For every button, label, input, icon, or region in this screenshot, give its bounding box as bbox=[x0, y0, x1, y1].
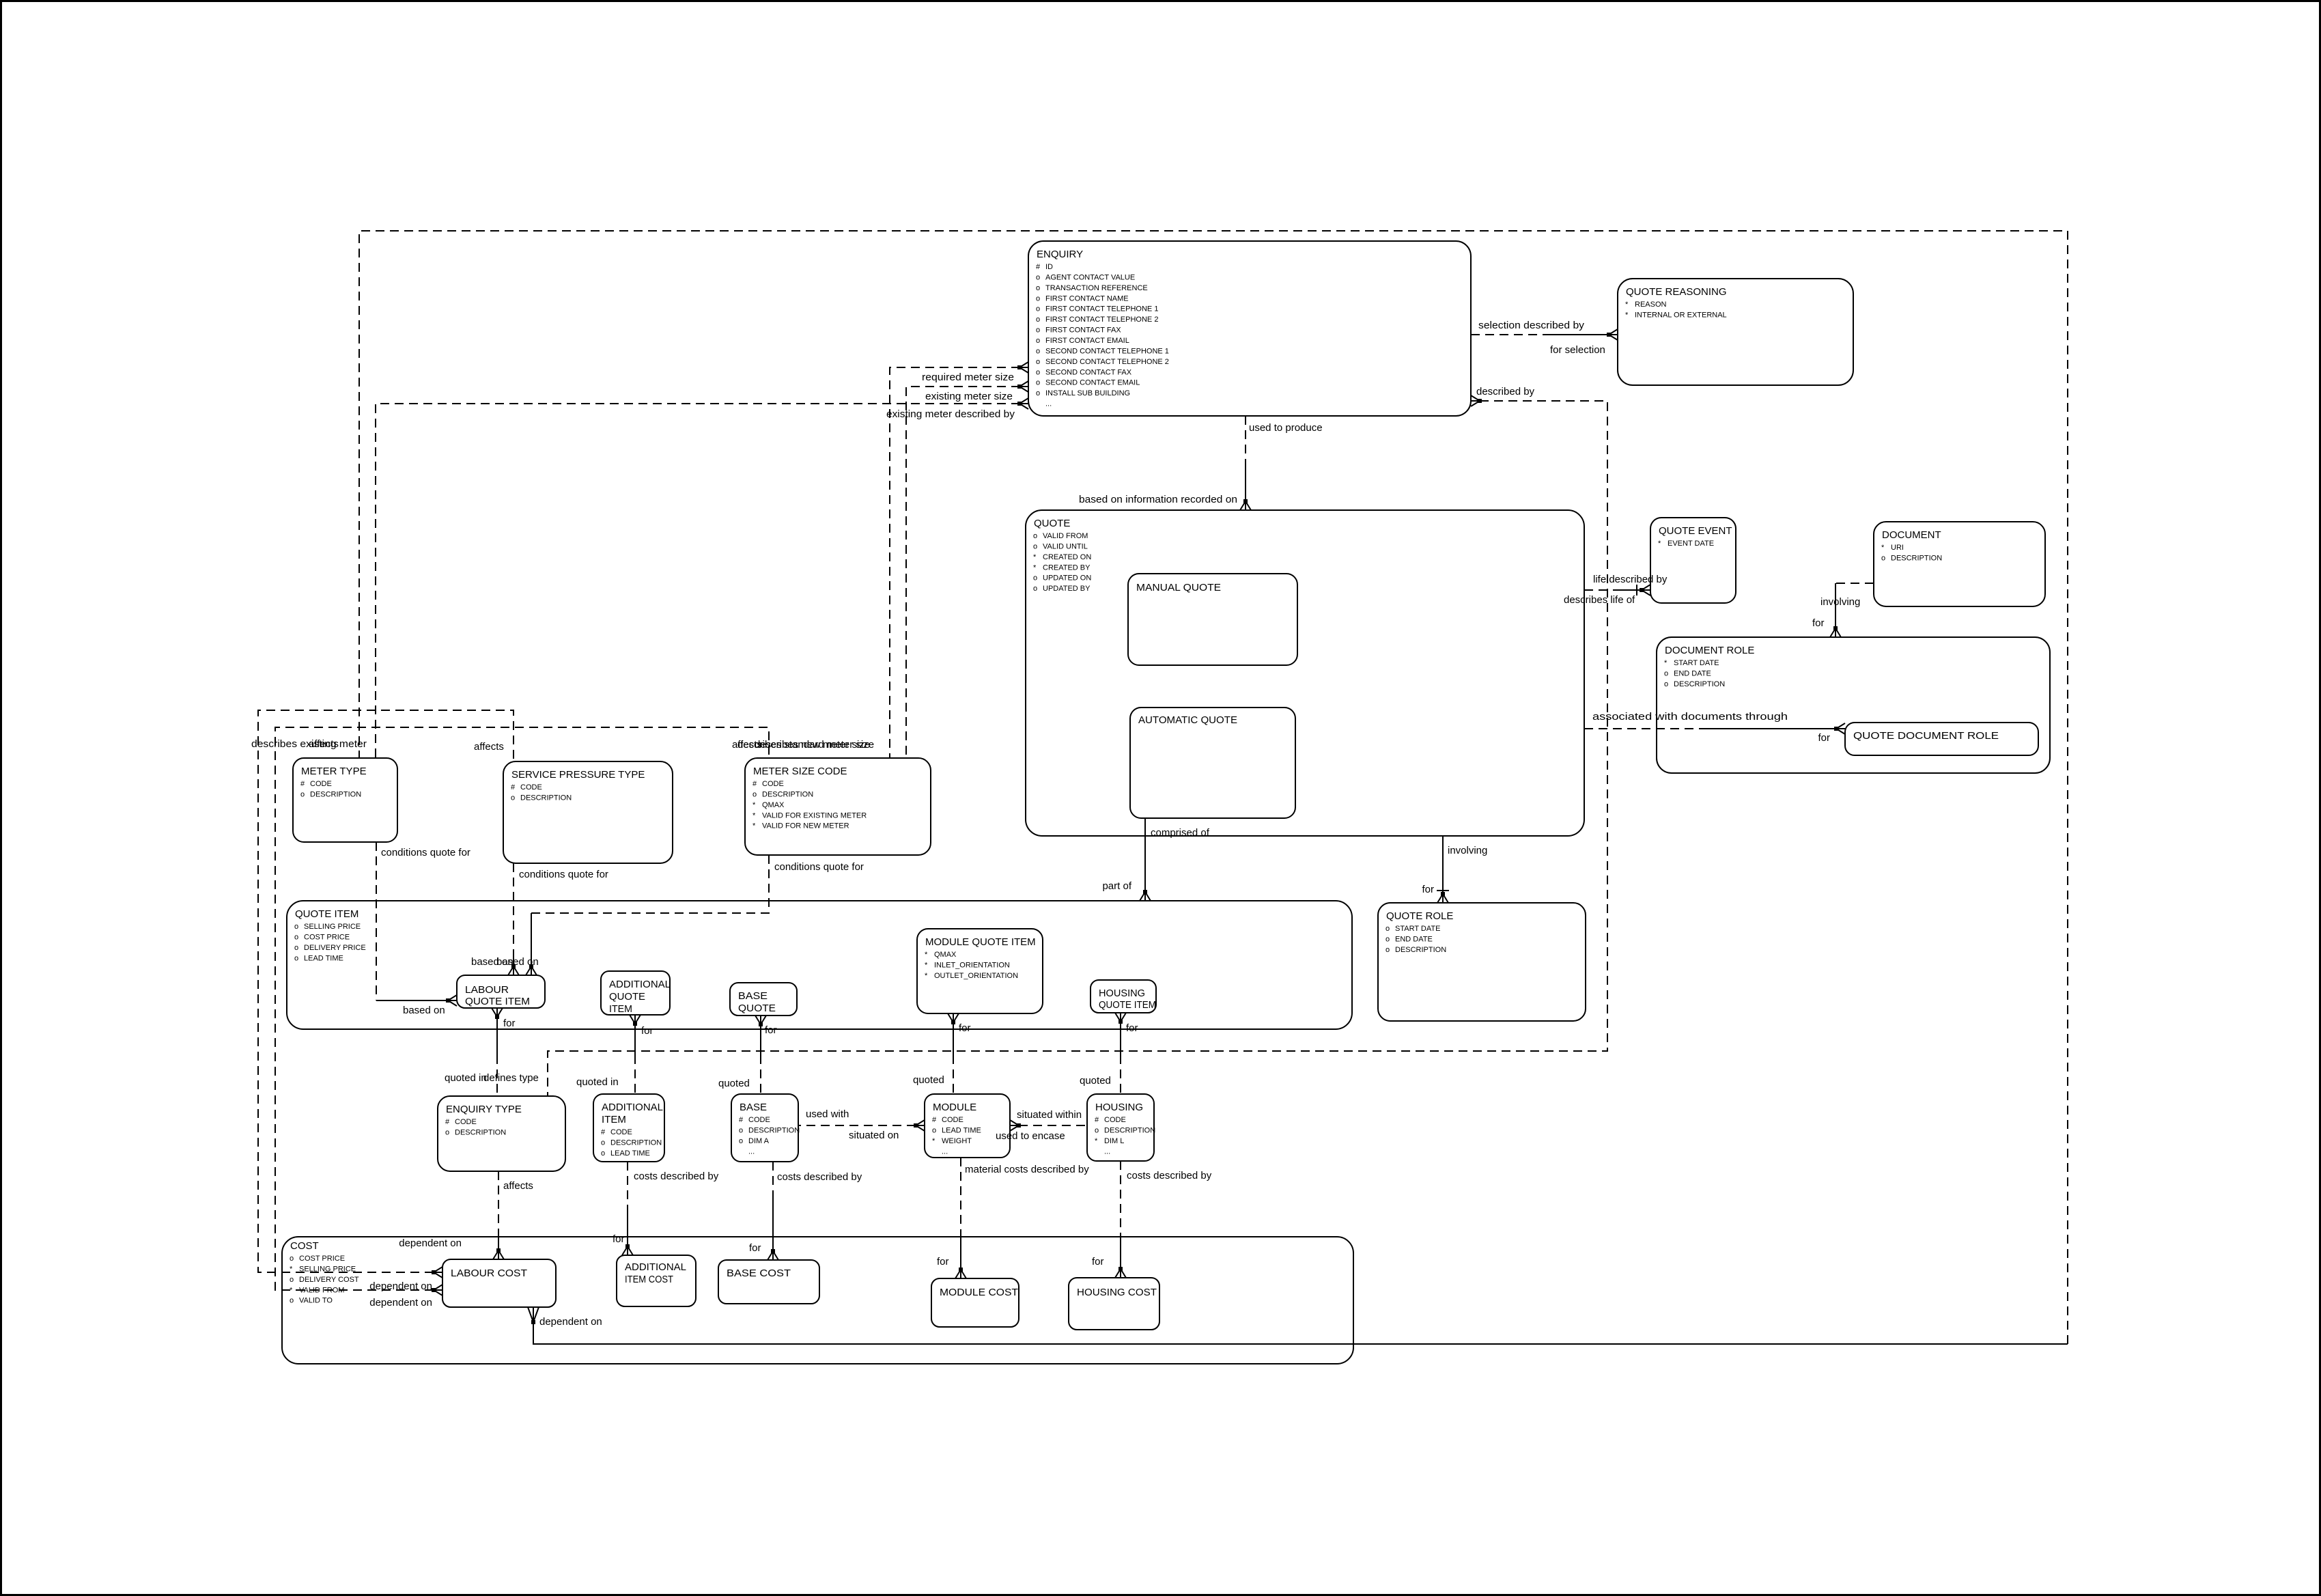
svg-text:AGENT CONTACT VALUE: AGENT CONTACT VALUE bbox=[1045, 273, 1135, 281]
svg-text:o: o bbox=[294, 923, 298, 931]
svg-text:QUOTE ITEM: QUOTE ITEM bbox=[1099, 999, 1156, 1011]
svg-text:o: o bbox=[294, 944, 298, 952]
svg-text:costs described by: costs described by bbox=[634, 1171, 719, 1182]
svg-text:VALID FROM: VALID FROM bbox=[1043, 532, 1088, 540]
svg-text:o: o bbox=[445, 1128, 449, 1136]
svg-text:SERVICE PRESSURE TYPE: SERVICE PRESSURE TYPE bbox=[511, 769, 645, 781]
svg-text:QUOTE: QUOTE bbox=[609, 991, 645, 1003]
svg-text:for: for bbox=[1422, 884, 1434, 895]
svg-text:defines type: defines type bbox=[483, 1072, 539, 1084]
svg-text:SECOND CONTACT TELEPHONE 2: SECOND CONTACT TELEPHONE 2 bbox=[1045, 358, 1169, 366]
svg-text:costs described by: costs described by bbox=[777, 1171, 862, 1183]
svg-text:DESCRIPTION: DESCRIPTION bbox=[748, 1126, 800, 1134]
svg-text:o: o bbox=[1036, 305, 1040, 313]
svg-text:situated on: situated on bbox=[849, 1130, 899, 1141]
svg-text:DOCUMENT ROLE: DOCUMENT ROLE bbox=[1665, 645, 1754, 656]
svg-text:#: # bbox=[1095, 1116, 1099, 1124]
svg-text:SECOND CONTACT EMAIL: SECOND CONTACT EMAIL bbox=[1045, 379, 1140, 387]
svg-text:based on information recorded: based on information recorded on bbox=[1079, 494, 1237, 505]
svg-text:TRANSACTION REFERENCE: TRANSACTION REFERENCE bbox=[1045, 284, 1148, 292]
svg-text:...: ... bbox=[748, 1147, 755, 1156]
svg-text:MODULE QUOTE ITEM: MODULE QUOTE ITEM bbox=[925, 936, 1036, 948]
svg-text:FIRST CONTACT TELEPHONE 1: FIRST CONTACT TELEPHONE 1 bbox=[1045, 305, 1158, 313]
svg-text:LEAD TIME: LEAD TIME bbox=[610, 1149, 650, 1158]
svg-text:o: o bbox=[739, 1137, 743, 1145]
svg-text:#: # bbox=[601, 1128, 606, 1136]
svg-text:quoted: quoted bbox=[718, 1078, 750, 1089]
svg-text:affects: affects bbox=[309, 738, 339, 750]
svg-text:o: o bbox=[752, 790, 757, 798]
svg-text:#: # bbox=[511, 783, 516, 792]
svg-text:dependent on: dependent on bbox=[369, 1297, 432, 1308]
svg-text:COST PRICE: COST PRICE bbox=[299, 1255, 345, 1263]
svg-text:describes new meter size: describes new meter size bbox=[755, 739, 870, 751]
svg-text:o: o bbox=[290, 1297, 294, 1305]
svg-text:o: o bbox=[511, 794, 515, 802]
svg-text:*: * bbox=[1625, 311, 1629, 319]
svg-text:VALID TO: VALID TO bbox=[299, 1297, 333, 1305]
svg-text:o: o bbox=[1036, 389, 1040, 397]
svg-text:FIRST CONTACT TELEPHONE 2: FIRST CONTACT TELEPHONE 2 bbox=[1045, 316, 1158, 324]
svg-text:ITEM: ITEM bbox=[602, 1114, 626, 1125]
svg-text:HOUSING: HOUSING bbox=[1095, 1102, 1143, 1113]
svg-text:BASE: BASE bbox=[738, 990, 768, 1002]
svg-text:DESCRIPTION: DESCRIPTION bbox=[1674, 680, 1725, 688]
svg-text:o: o bbox=[300, 790, 305, 798]
svg-text:*: * bbox=[932, 1137, 936, 1145]
svg-text:*: * bbox=[1664, 659, 1668, 667]
svg-text:LABOUR: LABOUR bbox=[465, 984, 509, 996]
svg-text:o: o bbox=[294, 954, 298, 962]
svg-text:INLET_ORIENTATION: INLET_ORIENTATION bbox=[934, 961, 1010, 969]
svg-text:part of: part of bbox=[1102, 880, 1131, 892]
svg-text:#: # bbox=[752, 780, 757, 788]
svg-text:REASON: REASON bbox=[1635, 300, 1667, 309]
svg-text:QUOTE DOCUMENT ROLE: QUOTE DOCUMENT ROLE bbox=[1853, 730, 1999, 742]
svg-text:o: o bbox=[1033, 574, 1037, 583]
svg-text:ADDITIONAL: ADDITIONAL bbox=[602, 1102, 663, 1113]
svg-text:DELIVERY PRICE: DELIVERY PRICE bbox=[304, 944, 366, 952]
svg-text:associated with documents thro: associated with documents through bbox=[1592, 711, 1788, 723]
svg-text:o: o bbox=[1036, 273, 1040, 281]
svg-text:o: o bbox=[1036, 326, 1040, 335]
svg-text:o: o bbox=[1385, 946, 1390, 954]
svg-text:CODE: CODE bbox=[1104, 1116, 1126, 1124]
svg-text:for: for bbox=[503, 1018, 516, 1029]
svg-text:o: o bbox=[1036, 368, 1040, 376]
svg-text:used to produce: used to produce bbox=[1249, 422, 1323, 434]
svg-text:conditions quote for: conditions quote for bbox=[774, 861, 864, 873]
svg-text:CODE: CODE bbox=[942, 1116, 963, 1124]
svg-text:CODE: CODE bbox=[455, 1118, 477, 1126]
svg-text:DESCRIPTION: DESCRIPTION bbox=[310, 790, 361, 798]
svg-text:involving: involving bbox=[1820, 596, 1860, 608]
svg-text:quoted in: quoted in bbox=[445, 1072, 487, 1084]
svg-text:FIRST CONTACT NAME: FIRST CONTACT NAME bbox=[1045, 294, 1129, 303]
svg-text:LEAD TIME: LEAD TIME bbox=[304, 954, 343, 962]
svg-text:o: o bbox=[1664, 680, 1668, 688]
svg-text:QUOTE EVENT: QUOTE EVENT bbox=[1659, 525, 1732, 537]
svg-text:for: for bbox=[613, 1233, 625, 1245]
svg-text:FIRST CONTACT FAX: FIRST CONTACT FAX bbox=[1045, 326, 1121, 335]
svg-text:COST PRICE: COST PRICE bbox=[304, 933, 350, 941]
svg-text:o: o bbox=[1385, 935, 1390, 943]
svg-text:o: o bbox=[1033, 542, 1037, 550]
svg-text:existing meter size: existing meter size bbox=[925, 391, 1013, 402]
svg-text:METER SIZE CODE: METER SIZE CODE bbox=[753, 766, 847, 777]
svg-text:LEAD TIME: LEAD TIME bbox=[942, 1126, 981, 1134]
svg-text:o: o bbox=[290, 1255, 294, 1263]
svg-text:*: * bbox=[1881, 544, 1885, 552]
svg-text:for: for bbox=[1818, 732, 1830, 744]
svg-text:#: # bbox=[1036, 263, 1041, 271]
svg-text:FIRST CONTACT EMAIL: FIRST CONTACT EMAIL bbox=[1045, 337, 1129, 345]
svg-text:SECOND CONTACT TELEPHONE 1: SECOND CONTACT TELEPHONE 1 bbox=[1045, 347, 1169, 355]
svg-text:o: o bbox=[1033, 532, 1037, 540]
svg-text:for: for bbox=[641, 1025, 653, 1037]
svg-text:required meter size: required meter size bbox=[922, 372, 1014, 383]
svg-text:existing meter described by: existing meter described by bbox=[886, 408, 1015, 420]
svg-text:INTERNAL OR EXTERNAL: INTERNAL OR EXTERNAL bbox=[1635, 311, 1727, 319]
svg-text:*: * bbox=[1625, 300, 1629, 309]
svg-text:describes life of: describes life of bbox=[1564, 594, 1635, 606]
svg-text:*: * bbox=[925, 961, 928, 969]
svg-text:o: o bbox=[739, 1126, 743, 1134]
svg-text:ITEM COST: ITEM COST bbox=[625, 1274, 673, 1285]
svg-text:o: o bbox=[1881, 554, 1885, 562]
svg-text:DESCRIPTION: DESCRIPTION bbox=[455, 1128, 506, 1136]
svg-text:o: o bbox=[1385, 925, 1390, 933]
svg-text:MODULE COST: MODULE COST bbox=[940, 1287, 1018, 1298]
svg-text:ADDITIONAL: ADDITIONAL bbox=[609, 979, 671, 990]
svg-text:END DATE: END DATE bbox=[1395, 935, 1433, 943]
svg-text:BASE COST: BASE COST bbox=[727, 1268, 791, 1279]
svg-text:for selection: for selection bbox=[1550, 344, 1605, 356]
svg-text:DELIVERY COST: DELIVERY COST bbox=[299, 1276, 359, 1284]
svg-text:costs described by: costs described by bbox=[1127, 1170, 1212, 1181]
svg-text:conditions quote for: conditions quote for bbox=[381, 847, 470, 858]
svg-text:o: o bbox=[290, 1276, 294, 1284]
svg-text:*: * bbox=[752, 811, 756, 820]
svg-text:QUOTE REASONING: QUOTE REASONING bbox=[1626, 286, 1727, 298]
svg-text:quoted: quoted bbox=[913, 1074, 944, 1086]
svg-text:comprised of: comprised of bbox=[1151, 827, 1210, 839]
svg-text:OUTLET_ORIENTATION: OUTLET_ORIENTATION bbox=[934, 972, 1018, 980]
svg-text:AUTOMATIC QUOTE: AUTOMATIC QUOTE bbox=[1138, 714, 1237, 726]
svg-text:life described by: life described by bbox=[1593, 574, 1668, 585]
svg-text:CODE: CODE bbox=[748, 1116, 770, 1124]
svg-text:QUOTE: QUOTE bbox=[1034, 518, 1070, 529]
svg-text:UPDATED ON: UPDATED ON bbox=[1043, 574, 1091, 583]
svg-text:#: # bbox=[739, 1116, 744, 1124]
svg-text:...: ... bbox=[1045, 400, 1052, 408]
svg-text:DIM A: DIM A bbox=[748, 1137, 770, 1145]
svg-text:CODE: CODE bbox=[310, 780, 332, 788]
svg-text:selection described by: selection described by bbox=[1478, 320, 1585, 331]
svg-text:QUOTE ITEM: QUOTE ITEM bbox=[295, 908, 358, 920]
svg-text:SECOND CONTACT FAX: SECOND CONTACT FAX bbox=[1045, 368, 1132, 376]
svg-text:based on: based on bbox=[471, 956, 514, 968]
svg-text:*: * bbox=[1658, 540, 1661, 548]
svg-text:COST: COST bbox=[290, 1240, 319, 1252]
svg-text:o: o bbox=[294, 933, 298, 941]
svg-text:QUOTE ROLE: QUOTE ROLE bbox=[1386, 910, 1453, 922]
svg-text:o: o bbox=[1036, 284, 1040, 292]
svg-text:affects: affects bbox=[503, 1180, 533, 1192]
svg-text:ENQUIRY TYPE: ENQUIRY TYPE bbox=[446, 1104, 522, 1115]
svg-text:VALID UNTIL: VALID UNTIL bbox=[1043, 542, 1088, 550]
svg-text:HOUSING COST: HOUSING COST bbox=[1077, 1287, 1157, 1298]
svg-text:*: * bbox=[925, 951, 928, 959]
svg-text:CREATED BY: CREATED BY bbox=[1043, 563, 1091, 572]
svg-text:INSTALL SUB BUILDING: INSTALL SUB BUILDING bbox=[1045, 389, 1130, 397]
svg-text:VALID FROM: VALID FROM bbox=[299, 1286, 344, 1294]
svg-text:for: for bbox=[1092, 1256, 1104, 1268]
svg-text:based on: based on bbox=[403, 1005, 445, 1016]
svg-text:involving: involving bbox=[1448, 845, 1487, 856]
svg-text:for: for bbox=[959, 1022, 971, 1034]
svg-text:URI: URI bbox=[1891, 544, 1904, 552]
svg-text:DESCRIPTION: DESCRIPTION bbox=[1395, 946, 1446, 954]
svg-text:CODE: CODE bbox=[520, 783, 542, 792]
svg-text:*: * bbox=[1033, 553, 1037, 561]
svg-text:conditions quote for: conditions quote for bbox=[519, 869, 608, 880]
svg-text:*: * bbox=[925, 972, 928, 980]
svg-text:METER TYPE: METER TYPE bbox=[301, 766, 367, 777]
svg-text:EVENT DATE: EVENT DATE bbox=[1668, 540, 1714, 548]
svg-text:MODULE: MODULE bbox=[933, 1102, 976, 1113]
svg-text:MANUAL QUOTE: MANUAL QUOTE bbox=[1136, 582, 1221, 593]
svg-text:LABOUR COST: LABOUR COST bbox=[451, 1268, 527, 1279]
svg-text:DESCRIPTION: DESCRIPTION bbox=[762, 790, 813, 798]
svg-text:#: # bbox=[445, 1118, 450, 1126]
svg-text:situated within: situated within bbox=[1017, 1109, 1082, 1121]
svg-text:DOCUMENT: DOCUMENT bbox=[1882, 529, 1941, 541]
svg-text:BASE: BASE bbox=[740, 1102, 767, 1113]
svg-text:o: o bbox=[1095, 1126, 1099, 1134]
svg-text:o: o bbox=[1036, 347, 1040, 355]
svg-text:for: for bbox=[937, 1256, 949, 1268]
svg-text:ADDITIONAL: ADDITIONAL bbox=[625, 1261, 686, 1273]
svg-text:material costs described by: material costs described by bbox=[965, 1164, 1089, 1175]
svg-text:CODE: CODE bbox=[762, 780, 784, 788]
svg-text:VALID FOR NEW METER: VALID FOR NEW METER bbox=[762, 822, 849, 830]
svg-text:#: # bbox=[932, 1116, 937, 1124]
svg-text:DESCRIPTION: DESCRIPTION bbox=[1104, 1126, 1155, 1134]
svg-text:o: o bbox=[1033, 585, 1037, 593]
svg-text:o: o bbox=[1036, 316, 1040, 324]
svg-text:SELLING PRICE: SELLING PRICE bbox=[304, 923, 361, 931]
svg-text:DESCRIPTION: DESCRIPTION bbox=[610, 1138, 662, 1147]
svg-text:o: o bbox=[1036, 379, 1040, 387]
svg-text:o: o bbox=[1036, 294, 1040, 303]
svg-text:DESCRIPTION: DESCRIPTION bbox=[1891, 554, 1942, 562]
svg-text:QMAX: QMAX bbox=[934, 951, 957, 959]
svg-text:DIM L: DIM L bbox=[1104, 1137, 1124, 1145]
svg-text:...: ... bbox=[1104, 1147, 1110, 1156]
svg-text:CODE: CODE bbox=[610, 1128, 632, 1136]
svg-text:ID: ID bbox=[1045, 263, 1053, 271]
svg-text:*: * bbox=[1033, 563, 1037, 572]
svg-text:o: o bbox=[932, 1126, 936, 1134]
svg-text:described by: described by bbox=[1476, 386, 1535, 397]
svg-text:affects: affects bbox=[474, 741, 504, 753]
svg-text:HOUSING: HOUSING bbox=[1099, 988, 1145, 999]
svg-text:o: o bbox=[601, 1149, 605, 1158]
svg-text:o: o bbox=[1036, 358, 1040, 366]
svg-text:QUOTE: QUOTE bbox=[738, 1003, 776, 1014]
svg-text:VALID FOR EXISTING METER: VALID FOR EXISTING METER bbox=[762, 811, 867, 820]
svg-text:CREATED ON: CREATED ON bbox=[1043, 553, 1091, 561]
svg-text:END DATE: END DATE bbox=[1674, 669, 1711, 677]
svg-text:for: for bbox=[1126, 1022, 1138, 1034]
svg-text:used with: used with bbox=[806, 1108, 849, 1120]
svg-text:UPDATED BY: UPDATED BY bbox=[1043, 585, 1091, 593]
svg-text:DESCRIPTION: DESCRIPTION bbox=[520, 794, 572, 802]
svg-text:QMAX: QMAX bbox=[762, 801, 785, 809]
svg-text:dependent on: dependent on bbox=[539, 1316, 602, 1328]
svg-text:ENQUIRY: ENQUIRY bbox=[1037, 249, 1083, 260]
svg-text:*: * bbox=[752, 822, 756, 830]
svg-text:WEIGHT: WEIGHT bbox=[942, 1137, 972, 1145]
svg-text:used to encase: used to encase bbox=[996, 1130, 1065, 1142]
svg-text:o: o bbox=[1664, 669, 1668, 677]
svg-text:*: * bbox=[752, 801, 756, 809]
svg-text:quoted in: quoted in bbox=[576, 1076, 619, 1088]
svg-text:*: * bbox=[1095, 1137, 1098, 1145]
svg-text:#: # bbox=[300, 780, 305, 788]
svg-text:quoted: quoted bbox=[1080, 1075, 1111, 1087]
svg-text:for: for bbox=[1812, 617, 1825, 629]
svg-text:START DATE: START DATE bbox=[1674, 659, 1719, 667]
svg-text:START DATE: START DATE bbox=[1395, 925, 1440, 933]
svg-text:for: for bbox=[749, 1242, 761, 1254]
svg-text:ITEM: ITEM bbox=[609, 1003, 632, 1015]
svg-text:dependent on: dependent on bbox=[399, 1237, 462, 1249]
svg-text:o: o bbox=[1036, 337, 1040, 345]
svg-text:...: ... bbox=[942, 1147, 948, 1156]
svg-text:o: o bbox=[601, 1138, 605, 1147]
svg-text:QUOTE ITEM: QUOTE ITEM bbox=[465, 996, 530, 1007]
svg-text:for: for bbox=[765, 1024, 777, 1036]
